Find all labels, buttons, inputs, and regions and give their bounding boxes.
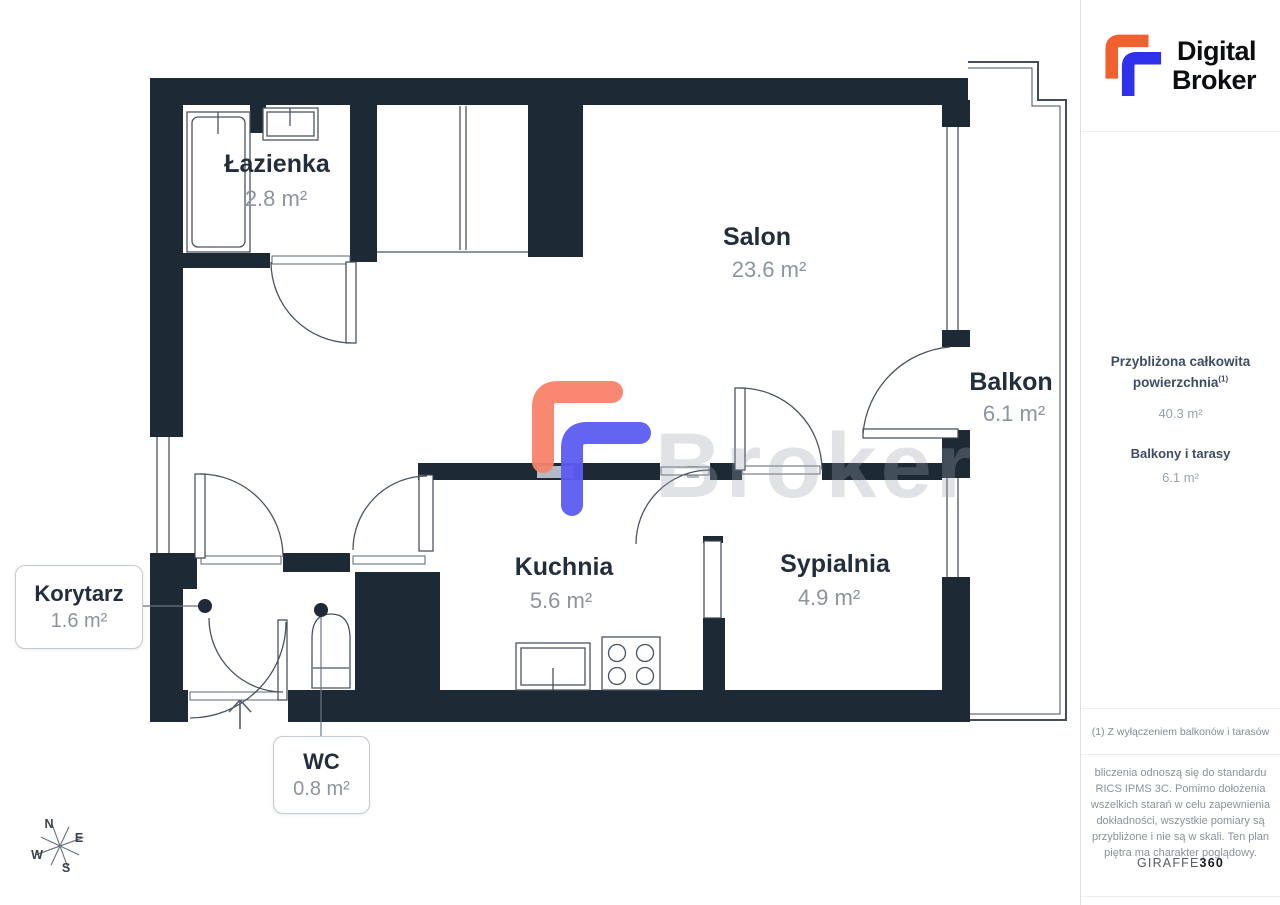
- room-label-kuchnia: Kuchnia: [515, 553, 615, 581]
- room-area-lazienka: 2.8 m²: [245, 186, 307, 211]
- callout-korytarz-name: Korytarz: [34, 581, 123, 607]
- room-label-balkon: Balkon: [969, 368, 1052, 396]
- callout-korytarz-area: 1.6 m²: [51, 610, 108, 633]
- room-area-balkon: 6.1 m²: [983, 401, 1045, 426]
- room-labels: Łazienka 2.8 m² Salon 23.6 m² Balkon 6.1…: [224, 150, 1052, 613]
- callout-korytarz: Korytarz 1.6 m²: [15, 565, 143, 649]
- balcony-area-title: Balkony i tarasy: [1081, 446, 1280, 461]
- callout-wc: WC 0.8 m²: [273, 736, 370, 814]
- entrance-arrow: [229, 700, 251, 729]
- room-label-lazienka: Łazienka: [224, 150, 331, 178]
- brand-logo-text: Digital Broker: [1172, 37, 1256, 93]
- stove: [602, 637, 660, 690]
- brand-logo: Digital Broker: [1081, 0, 1280, 132]
- arc-corridor-door: [200, 474, 283, 557]
- compass-n: N: [44, 817, 53, 831]
- room-label-sypialnia: Sypialnia: [780, 550, 891, 578]
- watermark-text: Broker: [655, 415, 976, 517]
- sidebar-bottom-divider: [1081, 896, 1280, 897]
- compass-e: E: [75, 831, 83, 845]
- arc-wc-door: [209, 618, 283, 692]
- window-salon-balcony: [942, 127, 970, 330]
- disclaimer: bliczenia odnoszą się do standardu RICS …: [1087, 766, 1274, 862]
- area-summary: Przybliżona całkowita powierzchnia(1) 40…: [1081, 352, 1280, 485]
- door-leaf-corridor: [195, 474, 205, 558]
- digital-broker-logo-icon: [1105, 34, 1163, 98]
- kitchen-sink: [516, 643, 590, 690]
- wardrobe: [377, 106, 528, 252]
- info-sidebar: Digital Broker Przybliżona całkowita pow…: [1080, 0, 1280, 905]
- compass-s: S: [62, 861, 70, 875]
- bathtub: [187, 112, 250, 252]
- brand-line1: Digital: [1177, 37, 1256, 65]
- room-label-salon: Salon: [723, 223, 791, 251]
- korytarz-dot: [198, 599, 212, 613]
- wc-dot: [314, 603, 328, 617]
- giraffe360-brand: GIRAFFE360: [1081, 856, 1280, 870]
- compass-w: W: [31, 848, 43, 862]
- callout-wc-area: 0.8 m²: [293, 778, 350, 801]
- room-area-sypialnia: 4.9 m²: [798, 585, 860, 610]
- arc-kitchen-door: [353, 476, 427, 550]
- window-left: [150, 437, 183, 553]
- door-leaf-kitchen: [419, 475, 433, 551]
- balcony-area-value: 6.1 m²: [1081, 470, 1280, 485]
- footnote-ref: (1): [1218, 374, 1228, 383]
- arc-bathroom-door: [271, 262, 351, 343]
- brand-line2: Broker: [1172, 66, 1256, 94]
- door-leaf-bathroom: [346, 262, 356, 343]
- callout-wc-name: WC: [303, 749, 340, 775]
- room-area-kuchnia: 5.6 m²: [530, 588, 592, 613]
- total-area-value: 40.3 m²: [1081, 406, 1280, 421]
- floorplan-page: Broker Łazienka 2.8 m² Salon 23.6 m² Bal…: [0, 0, 1280, 905]
- watermark: Broker: [543, 392, 976, 517]
- footnote: (1) Z wyłączeniem balkonów i tarasów: [1081, 708, 1280, 755]
- room-area-salon: 23.6 m²: [732, 257, 807, 282]
- door-leaf-bedroom: [704, 541, 721, 618]
- toilet: [312, 614, 350, 688]
- compass-rose: N E S W: [28, 814, 92, 878]
- bathroom-sink: [263, 108, 318, 140]
- arc-entrance-door: [190, 622, 286, 718]
- total-area-title: Przybliżona całkowita powierzchnia(1): [1081, 352, 1280, 394]
